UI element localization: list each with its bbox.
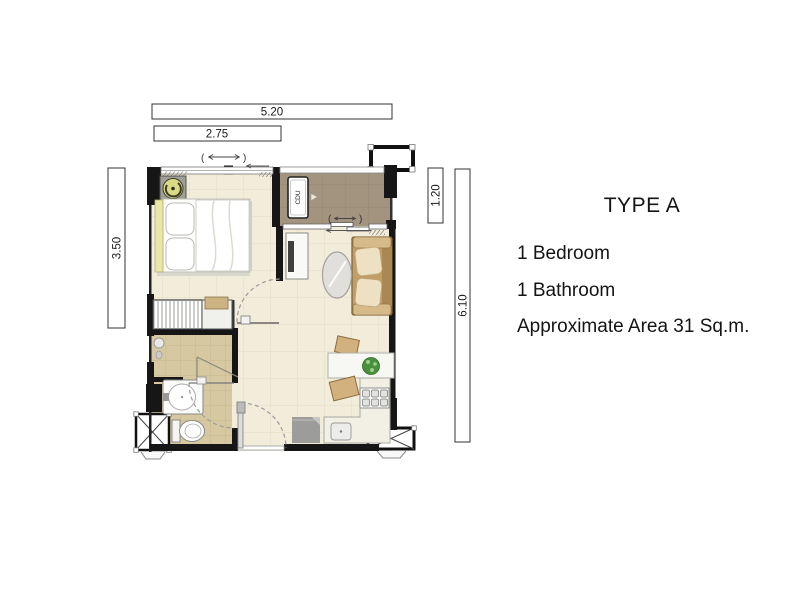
kitchen-sink xyxy=(331,423,351,440)
headboard xyxy=(155,200,163,272)
dim-right-balcony-label: 1.20 xyxy=(431,184,443,206)
sofa-pillow xyxy=(355,278,383,307)
bathroom-vanity xyxy=(163,380,203,414)
floor-plan-page: 5.20 2.75 3.50 1.20 6.10 xyxy=(0,0,800,600)
door-handle xyxy=(237,402,245,413)
shaft-bottom-left xyxy=(134,412,172,459)
cdu-label: CDU xyxy=(295,190,302,204)
svg-text:(: ( xyxy=(201,153,205,164)
sofa-pillow xyxy=(355,247,383,277)
dining-table xyxy=(328,353,394,378)
wall-left-block2 xyxy=(147,362,154,386)
louver-vent-icon xyxy=(141,452,165,459)
coffee-table xyxy=(323,252,352,298)
balcony-glass-right xyxy=(369,224,387,229)
tv-cabinet xyxy=(286,233,308,279)
wardrobe xyxy=(153,300,202,329)
dim-top-overall-label: 5.20 xyxy=(261,107,283,119)
tv-screen xyxy=(288,241,294,272)
dim-top-bedroom: 2.75 xyxy=(154,126,281,141)
dim-top-bedroom-label: 2.75 xyxy=(206,129,228,141)
wall-bedroom-balcony xyxy=(272,167,280,227)
unit-type-title: TYPE A xyxy=(517,194,767,218)
wall-left-block3 xyxy=(146,384,162,412)
wall-corner-tr xyxy=(384,165,397,198)
toilet-tank xyxy=(172,420,180,442)
window-swing-indicator: ( ) xyxy=(201,153,246,164)
svg-text:): ) xyxy=(243,153,246,164)
sliding-door-panel xyxy=(331,223,353,227)
sofa xyxy=(352,237,392,315)
duvet xyxy=(196,200,249,271)
entrance-threshold xyxy=(238,446,284,450)
sill-hatch xyxy=(369,230,385,236)
ceiling-fan-icon xyxy=(160,176,186,201)
dim-top-overall: 5.20 xyxy=(152,104,392,119)
bedroom-count: 1 Bedroom xyxy=(517,243,610,265)
dim-left-bedroom-label: 3.50 xyxy=(112,237,124,259)
floor-plan-drawing: 5.20 2.75 3.50 1.20 6.10 xyxy=(0,0,800,600)
shower-knob-icon xyxy=(156,351,162,359)
bed xyxy=(155,199,252,276)
stove xyxy=(360,388,389,408)
plant xyxy=(363,358,380,375)
toilet xyxy=(172,420,205,442)
balcony-rail-top xyxy=(280,167,384,173)
dim-left-bedroom: 3.50 xyxy=(108,168,125,328)
dim-right-balcony: 1.20 xyxy=(428,168,443,223)
balcony-glass-left xyxy=(283,224,331,229)
pillow xyxy=(166,238,194,270)
pillow xyxy=(166,203,194,235)
wall-bathroom-right-lower xyxy=(232,428,238,446)
wall-corner-tl xyxy=(147,167,161,205)
dim-right-overall-label: 6.10 xyxy=(458,294,470,316)
louver-vent-icon xyxy=(377,451,406,458)
faucet-icon xyxy=(163,393,169,401)
refrigerator xyxy=(292,417,320,443)
sill-hatch xyxy=(259,172,272,177)
door-handle xyxy=(241,316,250,324)
wall-bedroom-living xyxy=(276,226,283,281)
wall-post-balcony xyxy=(386,220,396,229)
bathroom-count: 1 Bathroom xyxy=(517,280,615,302)
svg-text:): ) xyxy=(359,214,362,225)
wall-bottom-left xyxy=(150,444,238,451)
sill-hatch xyxy=(163,172,187,177)
dim-right-overall: 6.10 xyxy=(455,169,470,442)
area-info: Approximate Area 31 Sq.m. xyxy=(517,316,749,338)
shower-head-icon xyxy=(154,338,164,348)
wall-bottom-right xyxy=(284,444,379,451)
door-handle xyxy=(197,377,206,384)
dresser xyxy=(202,297,232,329)
